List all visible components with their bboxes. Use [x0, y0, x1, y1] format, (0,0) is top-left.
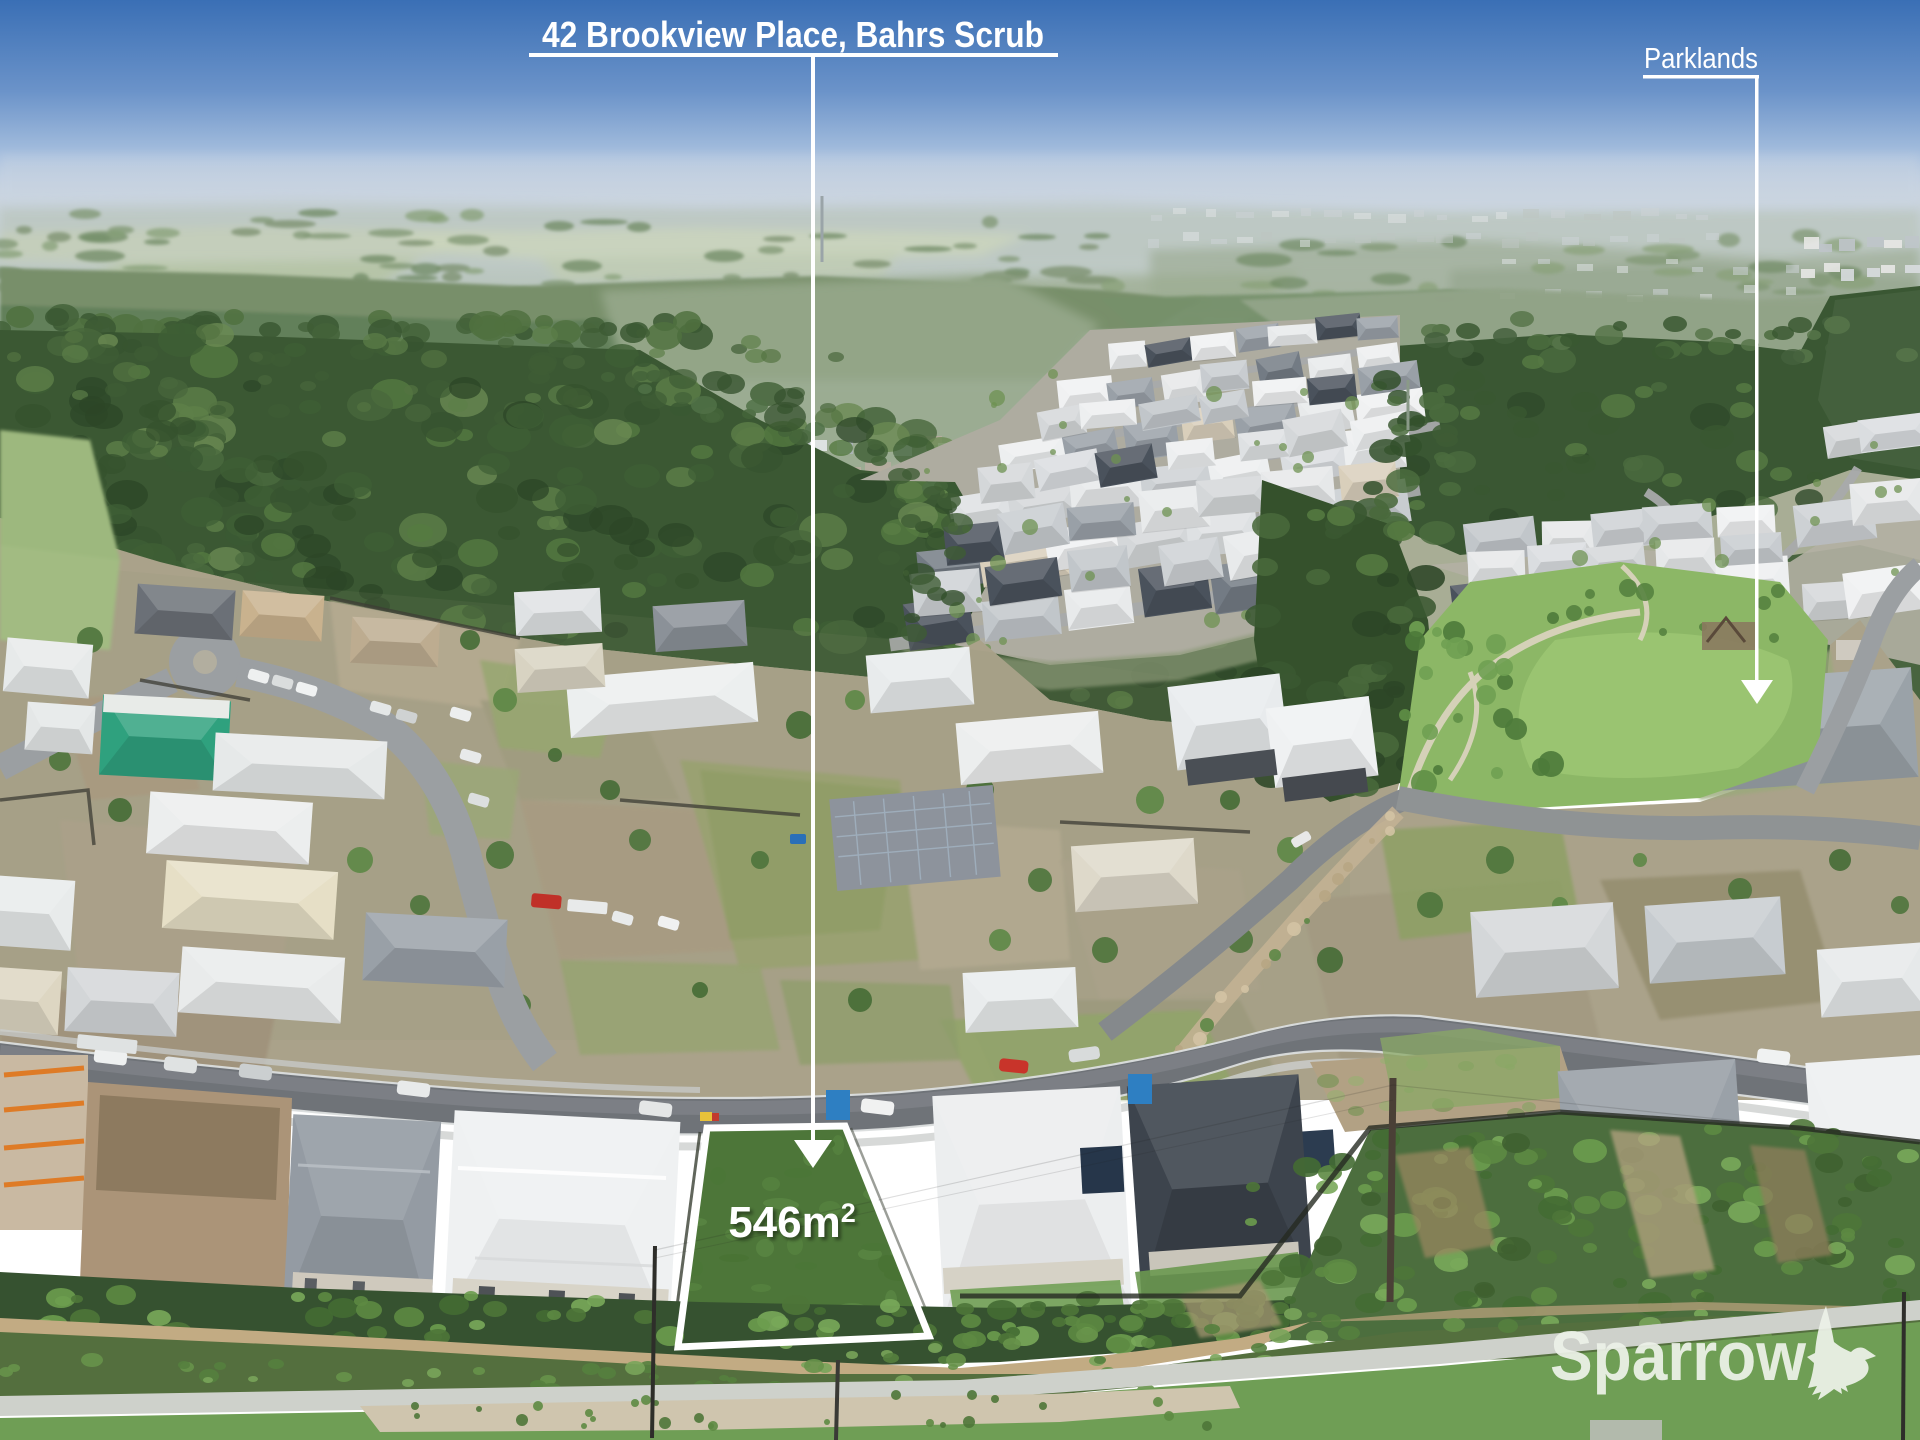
svg-text:546m2: 546m2: [728, 1198, 856, 1247]
svg-text:Parklands: Parklands: [1644, 43, 1758, 75]
svg-text:42 Brookview Place, Bahrs Scru: 42 Brookview Place, Bahrs Scrub: [542, 14, 1044, 55]
svg-text:Sparrow: Sparrow: [1550, 1317, 1806, 1395]
